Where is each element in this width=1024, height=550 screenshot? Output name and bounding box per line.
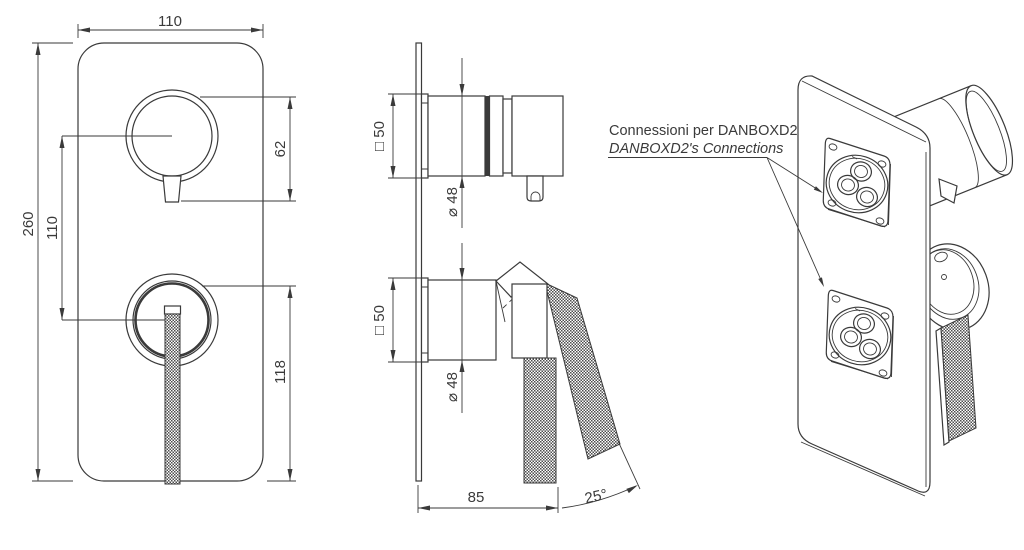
dim-top-flange-label: □ 50 [371,121,388,151]
dim-depth: 85 [418,485,558,513]
front-view: 110 260 110 62 118 [20,13,296,484]
iso-panel [798,76,930,492]
thermostat-handle-side [527,176,543,201]
thermostat-side [422,94,564,201]
annotation: Connessioni per DANBOXD2 DANBOXD2's Conn… [609,123,798,157]
dim-lever-label: 118 [272,360,289,384]
dim-front-width: 110 [78,13,263,38]
lever-head-side [512,284,547,358]
dim-top-knob-label: 62 [272,141,289,158]
lever-cap-front [165,306,181,314]
annotation-leaders [608,158,826,288]
dim-top-diameter-label: ⌀ 48 [444,187,461,217]
dim-bottom-diameter-label: ⌀ 48 [444,372,461,402]
dim-front-height-label: 260 [20,211,37,236]
dim-top-flange: □ 50 [371,94,421,178]
lever-vertical-side [524,358,556,483]
annotation-line1: Connessioni per DANBOXD2 [609,123,798,139]
dim-depth-label: 85 [468,489,485,506]
thermostat-knob-side [512,96,563,176]
side-view: □ 50 ⌀ 48 [371,43,640,513]
technical-drawing-canvas: 110 260 110 62 118 [0,0,1024,550]
lever-handle-front [165,314,180,484]
dim-front-width-label: 110 [158,13,182,30]
thermostat-handle-tab [163,176,181,202]
dim-angle-label: 25° [583,486,609,507]
dim-bottom-flange: □ 50 [371,278,421,362]
annotation-line2: DANBOXD2's Connections [609,141,783,157]
technical-drawing-page: 110 260 110 62 118 [0,0,1024,550]
iso-top-handle-tab [939,179,957,203]
dim-front-height: 260 [20,43,73,481]
dim-knob-spacing-label: 110 [44,216,61,240]
wall-plate-side [416,43,422,481]
dim-bottom-flange-label: □ 50 [371,305,388,335]
